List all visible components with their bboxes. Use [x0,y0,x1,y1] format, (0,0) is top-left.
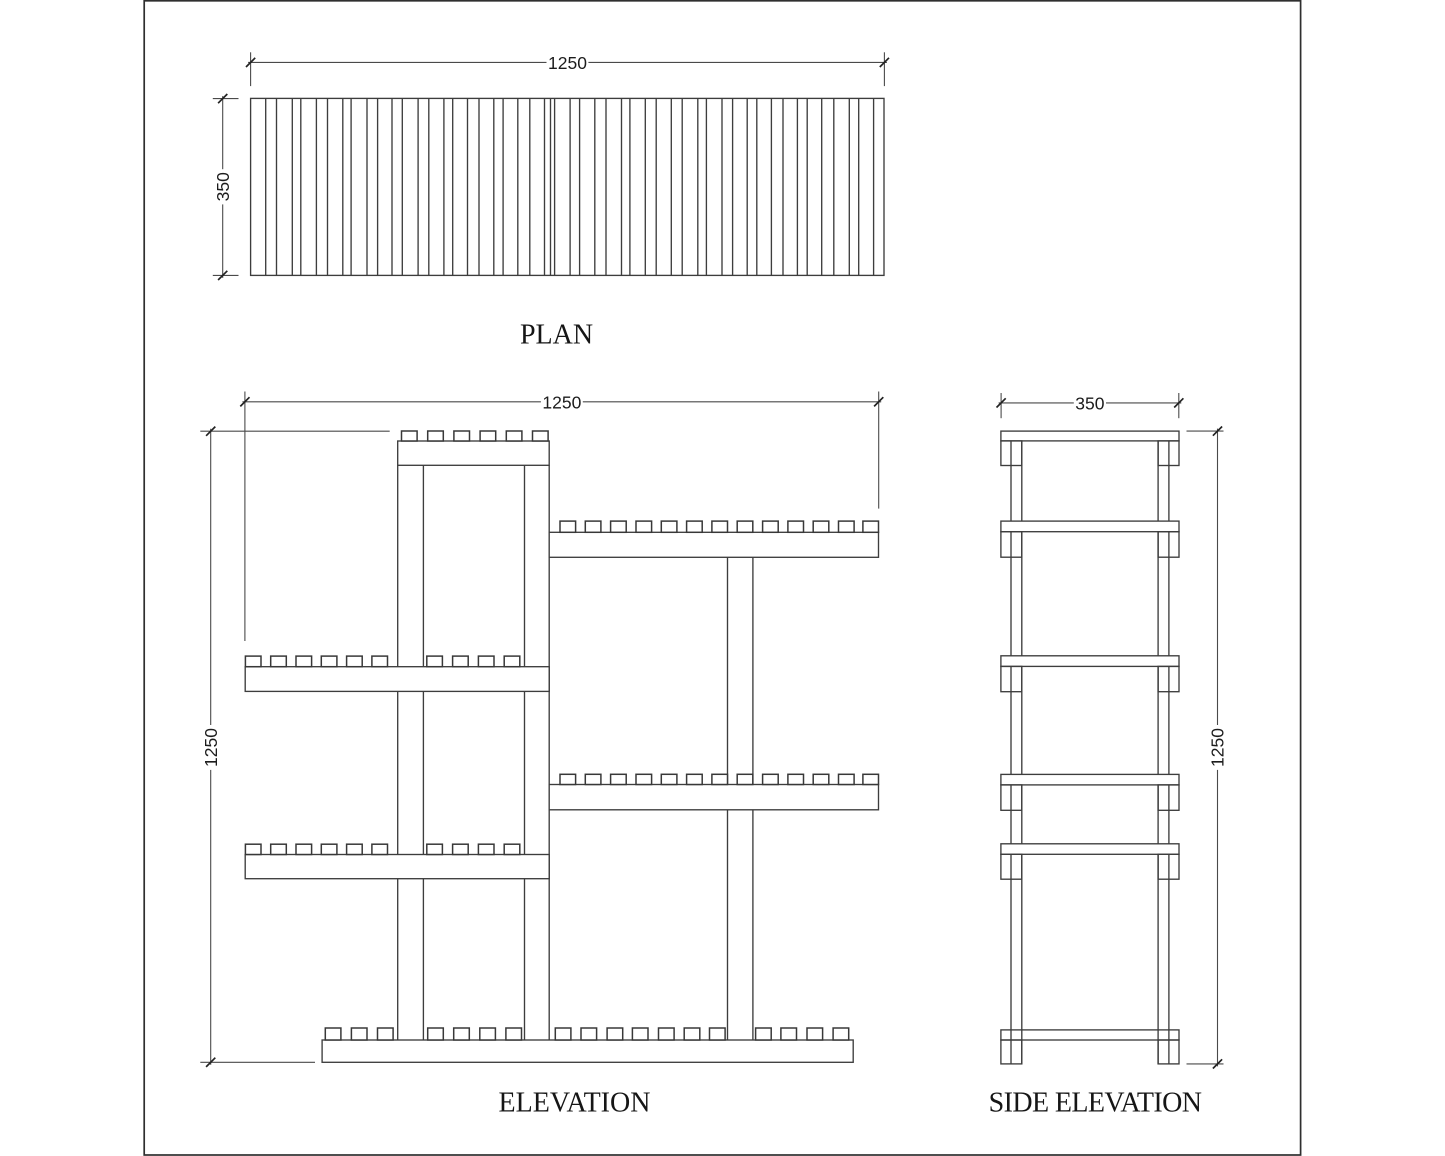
svg-text:1250: 1250 [1208,728,1228,767]
svg-text:350: 350 [213,172,233,201]
svg-text:PLAN: PLAN [520,320,593,351]
svg-text:350: 350 [1075,393,1104,413]
svg-text:SIDE ELEVATION: SIDE ELEVATION [989,1088,1202,1119]
svg-text:ELEVATION: ELEVATION [499,1088,651,1119]
svg-text:1250: 1250 [201,728,221,767]
svg-text:1250: 1250 [548,53,587,73]
svg-text:1250: 1250 [542,392,581,412]
